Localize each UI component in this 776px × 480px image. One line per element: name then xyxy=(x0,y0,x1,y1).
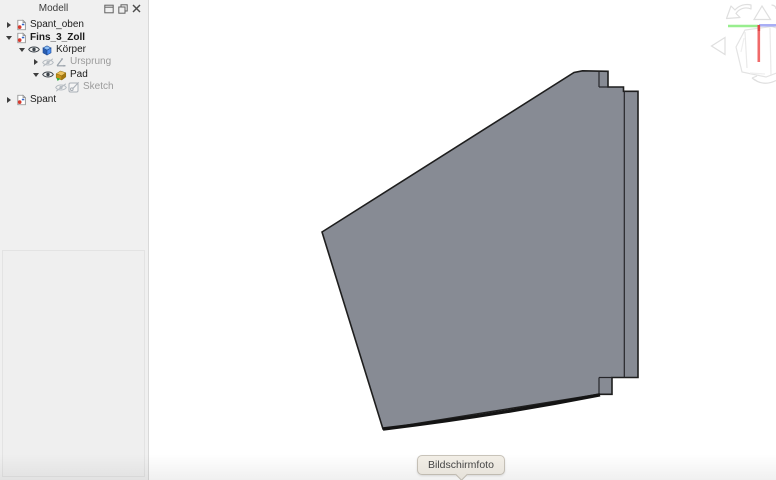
rotate-cw-arrow-icon[interactable] xyxy=(772,5,776,9)
screenshot-tooltip: Bildschirmfoto xyxy=(417,455,505,475)
nav-cube-icon[interactable] xyxy=(736,27,776,78)
fin-plate-face[interactable] xyxy=(322,71,638,429)
navigation-cluster xyxy=(712,5,776,84)
triangle-left-icon[interactable] xyxy=(712,38,726,55)
3d-viewport[interactable] xyxy=(0,0,776,480)
model-3d-object[interactable] xyxy=(322,71,638,429)
rotate-ccw-arrow-icon[interactable] xyxy=(727,5,752,19)
triangle-up-icon[interactable] xyxy=(754,6,771,20)
